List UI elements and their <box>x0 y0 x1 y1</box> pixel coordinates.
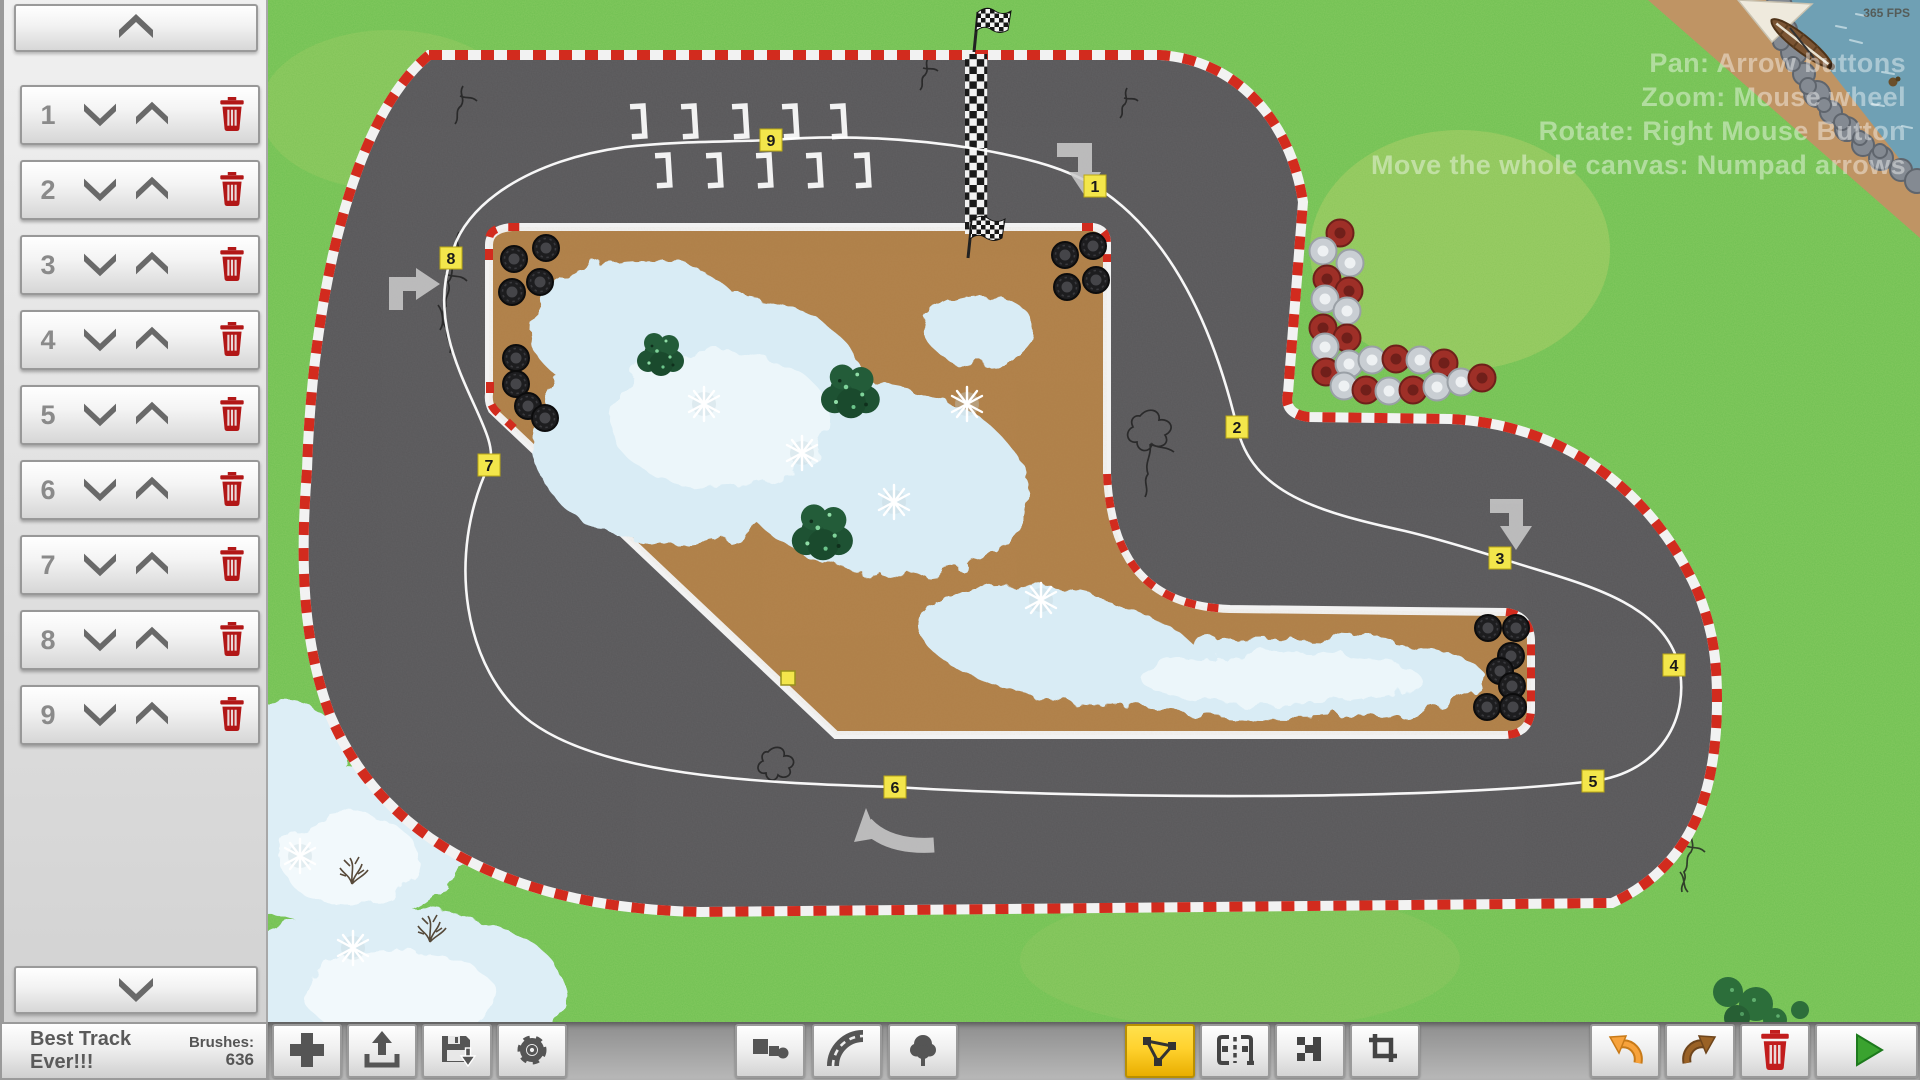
chevron-down-icon <box>77 473 123 508</box>
delete-layer-button[interactable] <box>218 97 246 134</box>
waypoint-marker-3[interactable]: 3 <box>1489 547 1511 569</box>
svg-text:5: 5 <box>1589 774 1598 791</box>
move-up-button[interactable] <box>129 248 175 283</box>
layer-number: 4 <box>22 325 74 356</box>
move-down-button[interactable] <box>77 248 123 283</box>
move-down-button[interactable] <box>77 548 123 583</box>
waypoint-marker-4[interactable]: 4 <box>1663 654 1685 676</box>
layer-number: 3 <box>22 250 74 281</box>
toolbar <box>268 1022 1920 1080</box>
layer-sidebar: 1 2 <box>0 0 268 1022</box>
chevron-down-icon <box>77 248 123 283</box>
brushes-count: 636 <box>189 1051 254 1068</box>
delete-layer-button[interactable] <box>218 247 246 284</box>
move-down-button[interactable] <box>77 623 123 658</box>
waypoint-path-icon <box>1138 1028 1182 1075</box>
waypoint-marker-5[interactable]: 5 <box>1582 770 1604 792</box>
trash-icon <box>218 172 246 209</box>
waypoint-tool-button[interactable] <box>1125 1024 1195 1078</box>
delete-track-button[interactable] <box>1740 1024 1810 1078</box>
delete-layer-button[interactable] <box>218 397 246 434</box>
track-canvas[interactable]: 123456789 <box>0 0 1920 1080</box>
undo-button[interactable] <box>1590 1024 1660 1078</box>
layer-number: 5 <box>22 400 74 431</box>
chevron-down-icon <box>77 623 123 658</box>
chevron-down-icon <box>77 98 123 133</box>
trash-icon <box>218 397 246 434</box>
delete-layer-button[interactable] <box>218 622 246 659</box>
move-down-button[interactable] <box>77 98 123 133</box>
shapes-tool-button[interactable] <box>735 1024 805 1078</box>
finish-checker-icon <box>1288 1028 1332 1075</box>
crop-tool-button[interactable] <box>1350 1024 1420 1078</box>
layer-number: 7 <box>22 550 74 581</box>
chevron-up-icon <box>129 323 175 358</box>
chevron-up-icon <box>129 698 175 733</box>
settings-button[interactable] <box>497 1024 567 1078</box>
move-up-button[interactable] <box>129 548 175 583</box>
svg-text:4: 4 <box>1670 658 1679 675</box>
racing-line-node[interactable] <box>781 671 795 685</box>
move-up-button[interactable] <box>129 173 175 208</box>
chevron-down-icon <box>77 398 123 433</box>
move-up-button[interactable] <box>129 623 175 658</box>
move-up-button[interactable] <box>129 398 175 433</box>
layer-row-1[interactable]: 1 <box>20 85 260 145</box>
chevron-up-icon <box>129 248 175 283</box>
settings-gear-icon <box>510 1028 554 1075</box>
chevron-up-icon <box>129 173 175 208</box>
trash-icon <box>218 472 246 509</box>
trash-icon <box>218 547 246 584</box>
layer-number: 6 <box>22 475 74 506</box>
load-icon <box>360 1028 404 1075</box>
crop-icon <box>1363 1028 1407 1075</box>
scroll-down-button[interactable] <box>14 966 258 1014</box>
waypoint-marker-8[interactable]: 8 <box>440 247 462 269</box>
layer-row-4[interactable]: 4 <box>20 310 260 370</box>
save-icon <box>435 1028 479 1075</box>
plus-icon <box>285 1028 329 1075</box>
chevron-up-icon <box>129 398 175 433</box>
load-button[interactable] <box>347 1024 417 1078</box>
chevron-up-icon <box>129 623 175 658</box>
layer-number: 9 <box>22 700 74 731</box>
move-down-button[interactable] <box>77 473 123 508</box>
layer-row-2[interactable]: 2 <box>20 160 260 220</box>
svg-text:9: 9 <box>767 133 776 150</box>
move-up-button[interactable] <box>129 698 175 733</box>
undo-icon <box>1603 1028 1647 1075</box>
play-icon <box>1845 1028 1889 1075</box>
delete-layer-button[interactable] <box>218 472 246 509</box>
save-button[interactable] <box>422 1024 492 1078</box>
scenery-tool-button[interactable] <box>888 1024 958 1078</box>
move-up-button[interactable] <box>129 323 175 358</box>
waypoint-marker-7[interactable]: 7 <box>478 454 500 476</box>
road-curve-icon <box>825 1028 869 1075</box>
waypoint-marker-1[interactable]: 1 <box>1084 175 1106 197</box>
start-grid-tool-button[interactable] <box>1200 1024 1270 1078</box>
layer-number: 8 <box>22 625 74 656</box>
play-test-button[interactable] <box>1815 1024 1918 1078</box>
svg-text:8: 8 <box>447 251 456 268</box>
delete-layer-button[interactable] <box>218 697 246 734</box>
svg-text:6: 6 <box>891 780 900 797</box>
move-down-button[interactable] <box>77 323 123 358</box>
chevron-down-icon <box>77 548 123 583</box>
trash-icon <box>218 247 246 284</box>
delete-layer-button[interactable] <box>218 322 246 359</box>
svg-text:2: 2 <box>1233 420 1242 437</box>
chevron-up-icon <box>129 98 175 133</box>
chevron-down-icon <box>77 173 123 208</box>
trash-icon <box>218 97 246 134</box>
trash-icon <box>1758 1030 1792 1073</box>
chevron-down-icon <box>77 323 123 358</box>
layer-row-8[interactable]: 8 <box>20 610 260 670</box>
road-tool-button[interactable] <box>812 1024 882 1078</box>
move-down-button[interactable] <box>77 398 123 433</box>
svg-text:1: 1 <box>1091 179 1100 196</box>
move-down-button[interactable] <box>77 698 123 733</box>
waypoint-marker-2[interactable]: 2 <box>1226 416 1248 438</box>
layer-row-6[interactable]: 6 <box>20 460 260 520</box>
redo-icon <box>1678 1028 1722 1075</box>
track-name-panel[interactable]: Best Track Ever!!! Brushes: 636 <box>0 1022 268 1080</box>
track-editor-window: 123456789 Pan: Arrow buttonsZoom: Mouse … <box>0 0 1920 1080</box>
chevron-down-icon <box>77 698 123 733</box>
chevron-up-icon <box>129 473 175 508</box>
layer-number: 1 <box>22 100 74 131</box>
chevron-down-icon <box>106 972 166 1009</box>
brushes-label: Brushes: <box>189 1034 254 1051</box>
shapes-brush-icon <box>748 1028 792 1075</box>
trash-icon <box>218 322 246 359</box>
layer-row-3[interactable]: 3 <box>20 235 260 295</box>
move-up-button[interactable] <box>129 98 175 133</box>
move-up-button[interactable] <box>129 473 175 508</box>
svg-text:3: 3 <box>1496 551 1505 568</box>
waypoint-marker-6[interactable]: 6 <box>884 776 906 798</box>
chevron-up-icon <box>106 10 166 47</box>
layer-number: 2 <box>22 175 74 206</box>
move-down-button[interactable] <box>77 173 123 208</box>
layer-row-5[interactable]: 5 <box>20 385 260 445</box>
scroll-up-button[interactable] <box>14 4 258 52</box>
redo-button[interactable] <box>1665 1024 1735 1078</box>
trash-icon <box>218 697 246 734</box>
layer-row-7[interactable]: 7 <box>20 535 260 595</box>
brush-counter: Brushes: 636 <box>189 1034 266 1068</box>
start-grid-icon <box>1213 1028 1257 1075</box>
delete-layer-button[interactable] <box>218 547 246 584</box>
trash-icon <box>218 622 246 659</box>
tree-icon <box>901 1028 945 1075</box>
svg-text:7: 7 <box>485 458 494 475</box>
chevron-up-icon <box>129 548 175 583</box>
delete-layer-button[interactable] <box>218 172 246 209</box>
waypoint-marker-9[interactable]: 9 <box>760 129 782 151</box>
finish-line-tool-button[interactable] <box>1275 1024 1345 1078</box>
new-track-button[interactable] <box>272 1024 342 1078</box>
track-name: Best Track Ever!!! <box>2 1028 189 1074</box>
layer-row-9[interactable]: 9 <box>20 685 260 745</box>
